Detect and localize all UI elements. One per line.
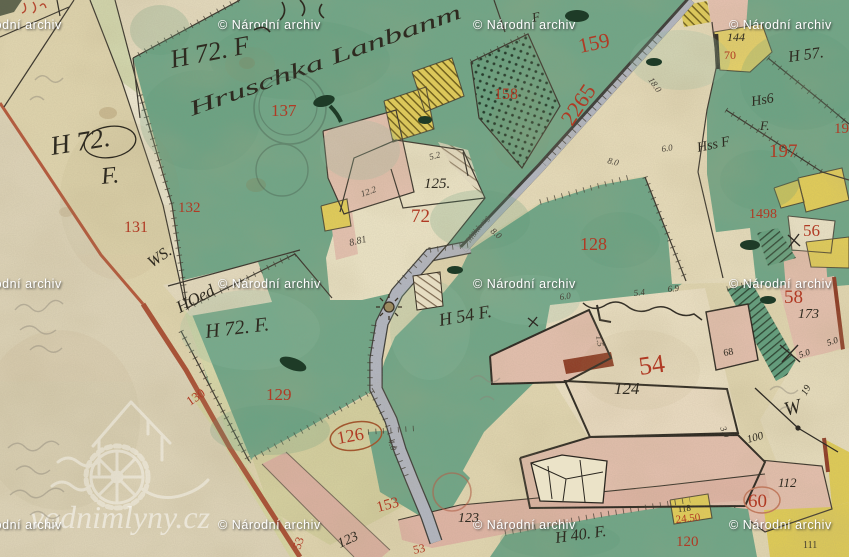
svg-text:58: 58 <box>784 287 803 308</box>
svg-text:144: 144 <box>727 30 745 44</box>
svg-text:F.: F. <box>99 162 120 190</box>
svg-text:© Národní archiv: © Národní archiv <box>0 277 62 291</box>
svg-text:© Národní archiv: © Národní archiv <box>473 18 576 32</box>
svg-text:132: 132 <box>178 200 201 216</box>
svg-text:© Národní archiv: © Národní archiv <box>729 277 832 291</box>
svg-text:© Národní archiv: © Národní archiv <box>218 277 321 291</box>
svg-text:© Národní archiv: © Národní archiv <box>218 518 321 532</box>
svg-text:173: 173 <box>798 307 819 322</box>
svg-text:1498: 1498 <box>749 207 777 222</box>
svg-text:19: 19 <box>834 121 849 137</box>
svg-text:6.0: 6.0 <box>559 290 572 302</box>
svg-text:128: 128 <box>580 234 607 254</box>
svg-text:56: 56 <box>803 221 820 240</box>
svg-text:68: 68 <box>723 346 735 359</box>
svg-text:118: 118 <box>677 503 692 514</box>
svg-text:6.0: 6.0 <box>661 142 674 154</box>
svg-text:131: 131 <box>124 219 148 236</box>
svg-text:© Národní archiv: © Národní archiv <box>729 518 832 532</box>
svg-text:70: 70 <box>724 48 736 62</box>
svg-text:158: 158 <box>494 86 518 103</box>
svg-text:© Národní archiv: © Národní archiv <box>0 18 62 32</box>
svg-text:72: 72 <box>411 206 430 227</box>
svg-text:112: 112 <box>778 475 797 490</box>
svg-text:125.: 125. <box>424 176 450 192</box>
svg-text:129: 129 <box>266 385 292 404</box>
svg-text:F.: F. <box>759 118 770 133</box>
svg-text:© Národní archiv: © Národní archiv <box>473 277 576 291</box>
svg-text:54: 54 <box>637 349 667 381</box>
svg-text:123: 123 <box>458 511 479 526</box>
svg-text:© Národní archiv: © Národní archiv <box>218 18 321 32</box>
svg-text:60: 60 <box>748 491 767 512</box>
svg-text:124: 124 <box>614 379 640 398</box>
svg-text:120: 120 <box>676 534 699 550</box>
svg-text:137: 137 <box>271 101 297 120</box>
svg-text:197: 197 <box>769 141 798 162</box>
